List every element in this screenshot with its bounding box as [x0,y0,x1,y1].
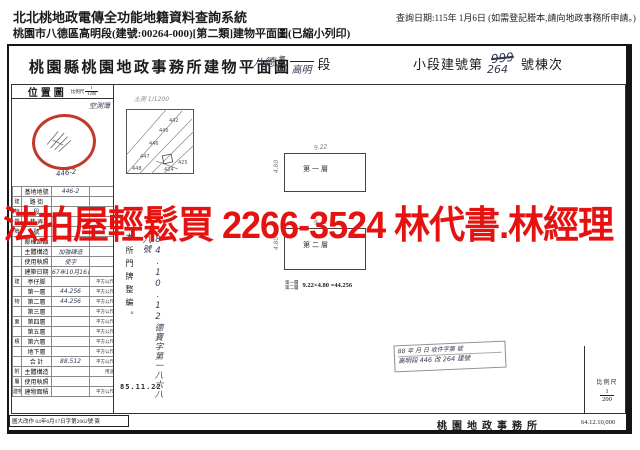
row-label: 第六層 [22,337,52,347]
table-row: 建築日期67年10月16日 [13,267,115,277]
building-number-group: 小段建號第 999 264 號棟次 [413,54,563,78]
registration-stamp: 88 年 月 日 收件字第 號 高明段 446 改 264 建號 [393,341,506,373]
document-subtitle: 桃園市八德區高明段(建號:00264-000)[第二類]建物平面圖(已縮小列印) [13,25,350,41]
row-unit: 平方公尺 [90,287,115,297]
map-scale-numerator: 1 [91,85,93,90]
map-scale-fraction: 1 1200 [85,86,98,97]
floor1-width-dim: 9.22 [314,143,328,151]
screenshot-root: 北北桃地政電傳全功能地籍資料查詢系統 查詢日期:115年 1月6日 (如需登記謄… [0,0,640,450]
table-row: 第三層平方公尺 [13,307,115,317]
ad-watermark: 法拍屋輕鬆買 2266-3524 林代書.林經理 [3,194,613,249]
row-value: 67年10月16日 [52,267,90,277]
location-map-title: 位置圖 [28,84,67,99]
map-scale-label: 比例尺 [71,89,85,95]
scale-fraction: 1 200 [600,388,614,403]
table-row: 使用執照使字 [13,257,115,267]
scale-label: 比例尺 [590,377,624,386]
building-number-prefix: 小段建號第 [413,54,483,73]
row-group: 物 [13,297,22,307]
row-group: 面 [13,317,22,327]
row-label: 第五層 [22,327,52,337]
row-group [13,357,22,367]
row-value: 44.256 [52,287,90,297]
row-label: 使用執照 [22,257,52,267]
parcel-number: 425 [178,160,188,166]
row-group [13,327,22,337]
location-map-box: 空測簿 446-2 [12,98,114,187]
table-row: 合 計88.512平方公尺 [13,357,115,367]
stamp-scribble-icon [33,115,89,163]
row-group: 積 [13,337,22,347]
floor1-rect: 第一層 [284,153,366,192]
row-group [13,257,22,267]
row-value: 44.256 [52,297,90,307]
row-value [52,277,90,287]
scale-denominator: 200 [600,395,614,403]
footer-strip: 圖大改作 64年6月17日字第2662號 簽 桃園地政事務所 64.12.10,… [9,414,626,430]
row-label: 第四層 [22,317,52,327]
cadastral-sketch: 442 445 446 447 448 425 424 [126,109,194,174]
row-unit: 平方公尺 [90,327,115,337]
city-label: 市 [279,63,286,70]
section-handwritten: 高明 [292,61,312,76]
parcel-number: 442 [169,118,179,124]
table-row: 地下層平方公尺 [13,347,115,357]
row-value [52,317,90,327]
row-label: 第三層 [22,307,52,317]
sidebar-empty-box [12,373,114,413]
row-value [52,327,90,337]
scale-numerator: 1 [600,388,614,395]
scale-cell-divider [584,346,585,414]
row-unit: 平方公尺 [90,347,115,357]
office-name: 桃園地政事務所 [437,417,542,432]
table-row: 建亭仔脚平方公尺 [13,277,115,287]
red-circle-stamp [30,111,99,172]
row-unit: 平方公尺 [90,317,115,327]
row-group [13,267,22,277]
building-number-handwritten: 999 264 [486,54,518,78]
district-handwritten: 八德 [253,54,275,70]
area-formula: 9.22×4.80 =44.256 [303,282,353,289]
query-date: 查詢日期:115年 1月6日 (如需登記謄本,請向地政事務所申請。) [396,11,636,24]
table-row: 積第六層平方公尺 [13,337,115,347]
location-map-scale: 比例尺 1 1200 [71,86,99,97]
table-row: 第一層44.256平方公尺 [13,287,115,297]
row-group: 建 [13,277,22,287]
table-row: 面第四層平方公尺 [13,317,115,327]
location-map-header: 位置圖 比例尺 1 1200 [12,85,114,99]
renumber-stamp-handwritten: 84.10.12德寶字第一八六八八號 [140,235,164,405]
floor1-height-dim: 4.80 [273,160,280,173]
map-parcel-handwritten: 446-2 [56,168,77,179]
system-title: 北北桃地政電傳全功能地籍資料查詢系統 [13,7,247,26]
map-note-handwritten: 空測簿 [89,101,110,111]
date-stamp: 85.11.22 [120,383,162,391]
row-value: 使字 [52,257,90,267]
row-group [13,347,22,357]
row-unit: 平方公尺 [90,337,115,347]
row-label: 地下層 [22,347,52,357]
row-unit: 平方公尺 [90,297,115,307]
township-city-label: 鄉 市 [279,56,286,70]
parcel-number: 446 [149,141,159,147]
row-group [13,307,22,317]
row-unit: 平方公尺 [90,307,115,317]
township-label: 鄉 [279,56,286,63]
row-label: 第一層 [22,287,52,297]
area-formula-note: 第一層 第二層 9.22×4.80 =44.256 [285,280,352,291]
row-value [52,337,90,347]
map-scale-denominator: 1200 [85,91,98,97]
row-group [13,287,22,297]
township-group: 八德 鄉 市 高明 段 [253,54,332,76]
table-row: 第五層平方公尺 [13,327,115,337]
table-row: 物第二層44.256平方公尺 [13,297,115,307]
sketch-note-handwritten: 土測 1/1200 [134,94,169,103]
parcel-number: 445 [159,128,169,134]
row-label: 第二層 [22,297,52,307]
building-number-suffix: 號棟次 [521,54,563,73]
scale-box: 比例尺 1 200 [590,377,624,406]
row-unit: 平方公尺 [90,277,115,287]
area-formula-floors: 第一層 第二層 [285,280,299,291]
parcel-number: 447 [140,154,150,160]
row-unit [90,267,115,277]
print-code: 64.12.10,000 [581,419,615,426]
row-unit: 平方公尺 [90,357,115,367]
row-value [52,307,90,317]
row-label: 合 計 [22,357,52,367]
revision-stamp: 圖大改作 64年6月17日字第2662號 簽 [9,415,129,427]
parcel-number: 424 [164,167,174,173]
floor1-label: 第一層 [303,164,330,174]
row-label: 亭仔脚 [22,277,52,287]
section-edit: 高明 [290,55,314,76]
parcel-number: 448 [132,166,142,172]
area-formula-floor2: 第二層 [285,285,299,290]
row-value [52,347,90,357]
row-value: 88.512 [52,357,90,367]
renumber-stamp-printed: 本所門牌整編。 [124,233,135,353]
document-title-row: 桃園縣桃園地政事務所建物平面圖 八德 鄉 市 高明 段 小段建號第 999 26… [9,46,626,84]
building-number-new: 264 [487,63,508,76]
row-unit [90,257,115,267]
row-label: 建築日期 [22,267,52,277]
section-label: 段 [318,54,332,73]
